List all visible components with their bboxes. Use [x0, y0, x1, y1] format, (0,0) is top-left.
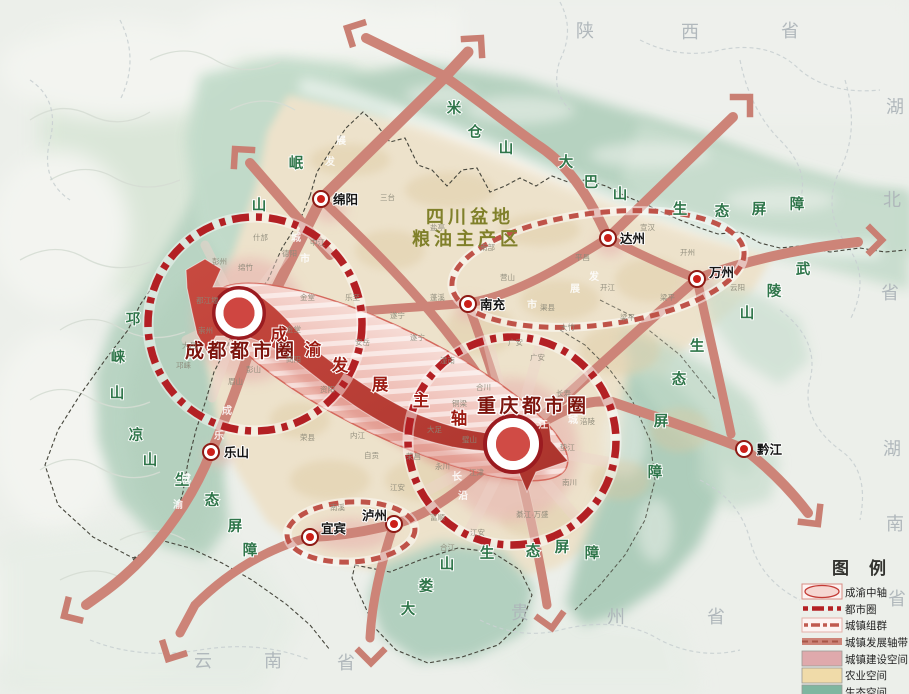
svg-text:态: 态 [715, 202, 730, 220]
svg-text:障: 障 [585, 544, 600, 562]
svg-text:达州: 达州 [620, 231, 645, 246]
svg-text:大竹: 大竹 [560, 322, 575, 332]
svg-text:梁平: 梁平 [620, 313, 635, 322]
svg-text:农业空间: 农业空间 [845, 669, 887, 682]
svg-text:展: 展 [372, 375, 389, 394]
svg-text:粮油主产区: 粮油主产区 [412, 228, 522, 249]
svg-text:内江: 内江 [350, 430, 365, 440]
svg-text:湖: 湖 [886, 97, 904, 117]
svg-text:开江: 开江 [600, 283, 615, 292]
svg-text:山: 山 [740, 305, 755, 322]
svg-text:娄: 娄 [419, 577, 434, 595]
svg-text:中江: 中江 [310, 237, 325, 247]
svg-text:简阳: 简阳 [286, 354, 301, 364]
svg-text:屏: 屏 [654, 413, 669, 430]
svg-text:什邡: 什邡 [253, 232, 268, 242]
svg-text:云: 云 [194, 651, 212, 671]
svg-text:铜梁: 铜梁 [452, 398, 467, 408]
svg-text:州: 州 [607, 607, 625, 627]
svg-text:綦江·万盛: 綦江·万盛 [516, 509, 549, 519]
svg-text:城镇发展轴带: 城镇发展轴带 [845, 636, 908, 649]
svg-text:陕: 陕 [576, 21, 594, 41]
svg-text:荣县: 荣县 [300, 432, 315, 442]
svg-text:城镇建设空间: 城镇建设空间 [845, 653, 908, 666]
svg-text:平昌: 平昌 [575, 253, 590, 262]
svg-text:山: 山 [143, 452, 158, 469]
svg-text:万州: 万州 [708, 266, 734, 280]
svg-text:生态空间: 生态空间 [845, 686, 887, 694]
svg-text:成: 成 [181, 472, 191, 485]
svg-text:南川: 南川 [562, 477, 577, 487]
svg-text:省: 省 [707, 607, 725, 627]
svg-text:山: 山 [440, 556, 455, 573]
svg-text:生: 生 [480, 544, 495, 562]
svg-text:金堂: 金堂 [286, 324, 301, 334]
svg-text:都市圈: 都市圈 [845, 603, 877, 616]
svg-text:障: 障 [648, 463, 663, 481]
svg-text:眉山: 眉山 [228, 376, 243, 386]
svg-text:绵竹: 绵竹 [238, 262, 253, 272]
svg-text:南: 南 [886, 514, 904, 534]
svg-text:荣昌: 荣昌 [406, 451, 421, 461]
svg-text:图例: 图例 [832, 558, 906, 578]
svg-text:德阳: 德阳 [282, 248, 297, 258]
svg-text:沿: 沿 [458, 489, 468, 502]
svg-text:彭山: 彭山 [246, 364, 261, 374]
svg-text:自贡: 自贡 [364, 450, 379, 460]
svg-text:合川: 合川 [476, 382, 491, 392]
svg-text:江安: 江安 [390, 482, 405, 492]
svg-text:遂宁: 遂宁 [410, 332, 425, 342]
svg-text:态: 态 [205, 491, 220, 509]
svg-text:璧山: 璧山 [462, 434, 477, 444]
svg-text:江津: 江津 [469, 468, 484, 477]
svg-text:遂宁: 遂宁 [390, 310, 405, 320]
svg-text:成渝中轴: 成渝中轴 [845, 586, 887, 599]
svg-text:岷: 岷 [289, 155, 304, 172]
svg-text:米: 米 [447, 99, 462, 117]
svg-text:合江: 合江 [440, 542, 455, 552]
svg-text:资阳: 资阳 [320, 384, 335, 394]
svg-text:障: 障 [790, 195, 805, 213]
svg-text:巴: 巴 [584, 174, 599, 191]
svg-text:梁平: 梁平 [660, 293, 675, 302]
svg-text:西: 西 [681, 22, 699, 42]
svg-text:邛崃: 邛崃 [176, 360, 191, 370]
svg-text:蓬溪: 蓬溪 [430, 292, 445, 302]
svg-text:大: 大 [559, 153, 574, 171]
svg-text:乐: 乐 [214, 429, 224, 442]
svg-text:贵: 贵 [511, 603, 529, 623]
svg-text:崃: 崃 [111, 349, 126, 366]
svg-text:乐山: 乐山 [224, 445, 249, 460]
svg-text:南溪: 南溪 [330, 502, 345, 512]
svg-text:渝: 渝 [305, 339, 322, 359]
svg-text:山: 山 [613, 186, 628, 203]
svg-text:山: 山 [499, 140, 514, 157]
svg-text:湖: 湖 [883, 439, 901, 459]
svg-text:市: 市 [527, 298, 537, 311]
svg-text:广安: 广安 [530, 352, 545, 362]
svg-text:大: 大 [401, 600, 416, 618]
svg-text:崇州: 崇州 [198, 326, 213, 335]
svg-text:长寿: 长寿 [556, 388, 571, 398]
svg-text:大邑: 大邑 [182, 340, 197, 350]
svg-text:展: 展 [570, 283, 580, 295]
svg-text:北: 北 [883, 190, 901, 210]
svg-text:态: 态 [526, 542, 541, 560]
svg-text:屏: 屏 [555, 539, 570, 556]
svg-text:黔江: 黔江 [757, 442, 783, 457]
svg-text:山: 山 [252, 197, 267, 214]
svg-text:邛: 邛 [126, 311, 141, 328]
svg-text:宣汉: 宣汉 [640, 222, 655, 232]
svg-text:省: 省 [337, 653, 355, 673]
svg-text:发: 发 [331, 355, 349, 375]
svg-text:发: 发 [588, 270, 600, 283]
svg-text:陵: 陵 [767, 282, 782, 300]
svg-text:云阳: 云阳 [730, 283, 745, 292]
svg-text:富顺: 富顺 [430, 512, 445, 522]
svg-text:大足: 大足 [427, 424, 442, 434]
svg-text:彭州: 彭州 [212, 256, 227, 266]
svg-text:展: 展 [336, 135, 346, 147]
svg-text:态: 态 [672, 370, 687, 388]
svg-text:武: 武 [796, 260, 811, 278]
svg-text:省: 省 [881, 283, 899, 303]
svg-text:金堂: 金堂 [300, 292, 315, 302]
svg-text:广安: 广安 [508, 337, 523, 347]
svg-text:永川: 永川 [435, 461, 450, 471]
svg-text:仓: 仓 [467, 123, 483, 141]
svg-text:涪陵: 涪陵 [580, 416, 595, 426]
svg-text:主: 主 [413, 390, 430, 410]
svg-text:南: 南 [264, 651, 282, 671]
svg-text:开州: 开州 [680, 248, 695, 257]
svg-text:绵阳: 绵阳 [333, 192, 358, 207]
svg-text:南部: 南部 [480, 242, 495, 252]
svg-text:屏: 屏 [752, 201, 767, 218]
svg-text:城: 城 [568, 413, 578, 426]
svg-text:江: 江 [538, 418, 548, 431]
svg-text:生: 生 [673, 200, 688, 218]
svg-text:障: 障 [243, 541, 258, 559]
svg-text:发: 发 [324, 155, 336, 168]
svg-text:城镇组群: 城镇组群 [845, 619, 887, 632]
svg-text:三台: 三台 [380, 192, 395, 202]
svg-text:安岳: 安岳 [355, 337, 370, 347]
svg-text:泸州: 泸州 [362, 508, 387, 523]
svg-text:垫江: 垫江 [560, 442, 575, 452]
svg-text:营山: 营山 [500, 272, 515, 282]
svg-text:潼南: 潼南 [440, 355, 455, 365]
svg-text:盐亭: 盐亭 [430, 222, 445, 232]
svg-text:市: 市 [300, 252, 310, 265]
svg-text:凉: 凉 [129, 426, 144, 444]
svg-text:南充: 南充 [480, 297, 506, 312]
svg-text:重庆都市圈: 重庆都市圈 [477, 394, 590, 417]
svg-text:省: 省 [781, 21, 799, 41]
svg-text:宜宾: 宜宾 [321, 521, 346, 536]
svg-text:渠县: 渠县 [540, 302, 555, 312]
svg-text:渝: 渝 [173, 498, 184, 511]
svg-text:乐至: 乐至 [345, 292, 360, 302]
svg-text:成: 成 [222, 404, 232, 417]
svg-text:都江堰: 都江堰 [196, 295, 219, 305]
svg-text:山: 山 [110, 385, 125, 402]
svg-text:省: 省 [888, 589, 906, 609]
svg-text:轴: 轴 [451, 408, 468, 428]
svg-text:江安: 江安 [470, 527, 485, 537]
svg-text:屏: 屏 [228, 518, 243, 535]
svg-text:长: 长 [452, 470, 463, 483]
svg-text:城: 城 [291, 231, 301, 244]
svg-text:生: 生 [690, 337, 705, 355]
